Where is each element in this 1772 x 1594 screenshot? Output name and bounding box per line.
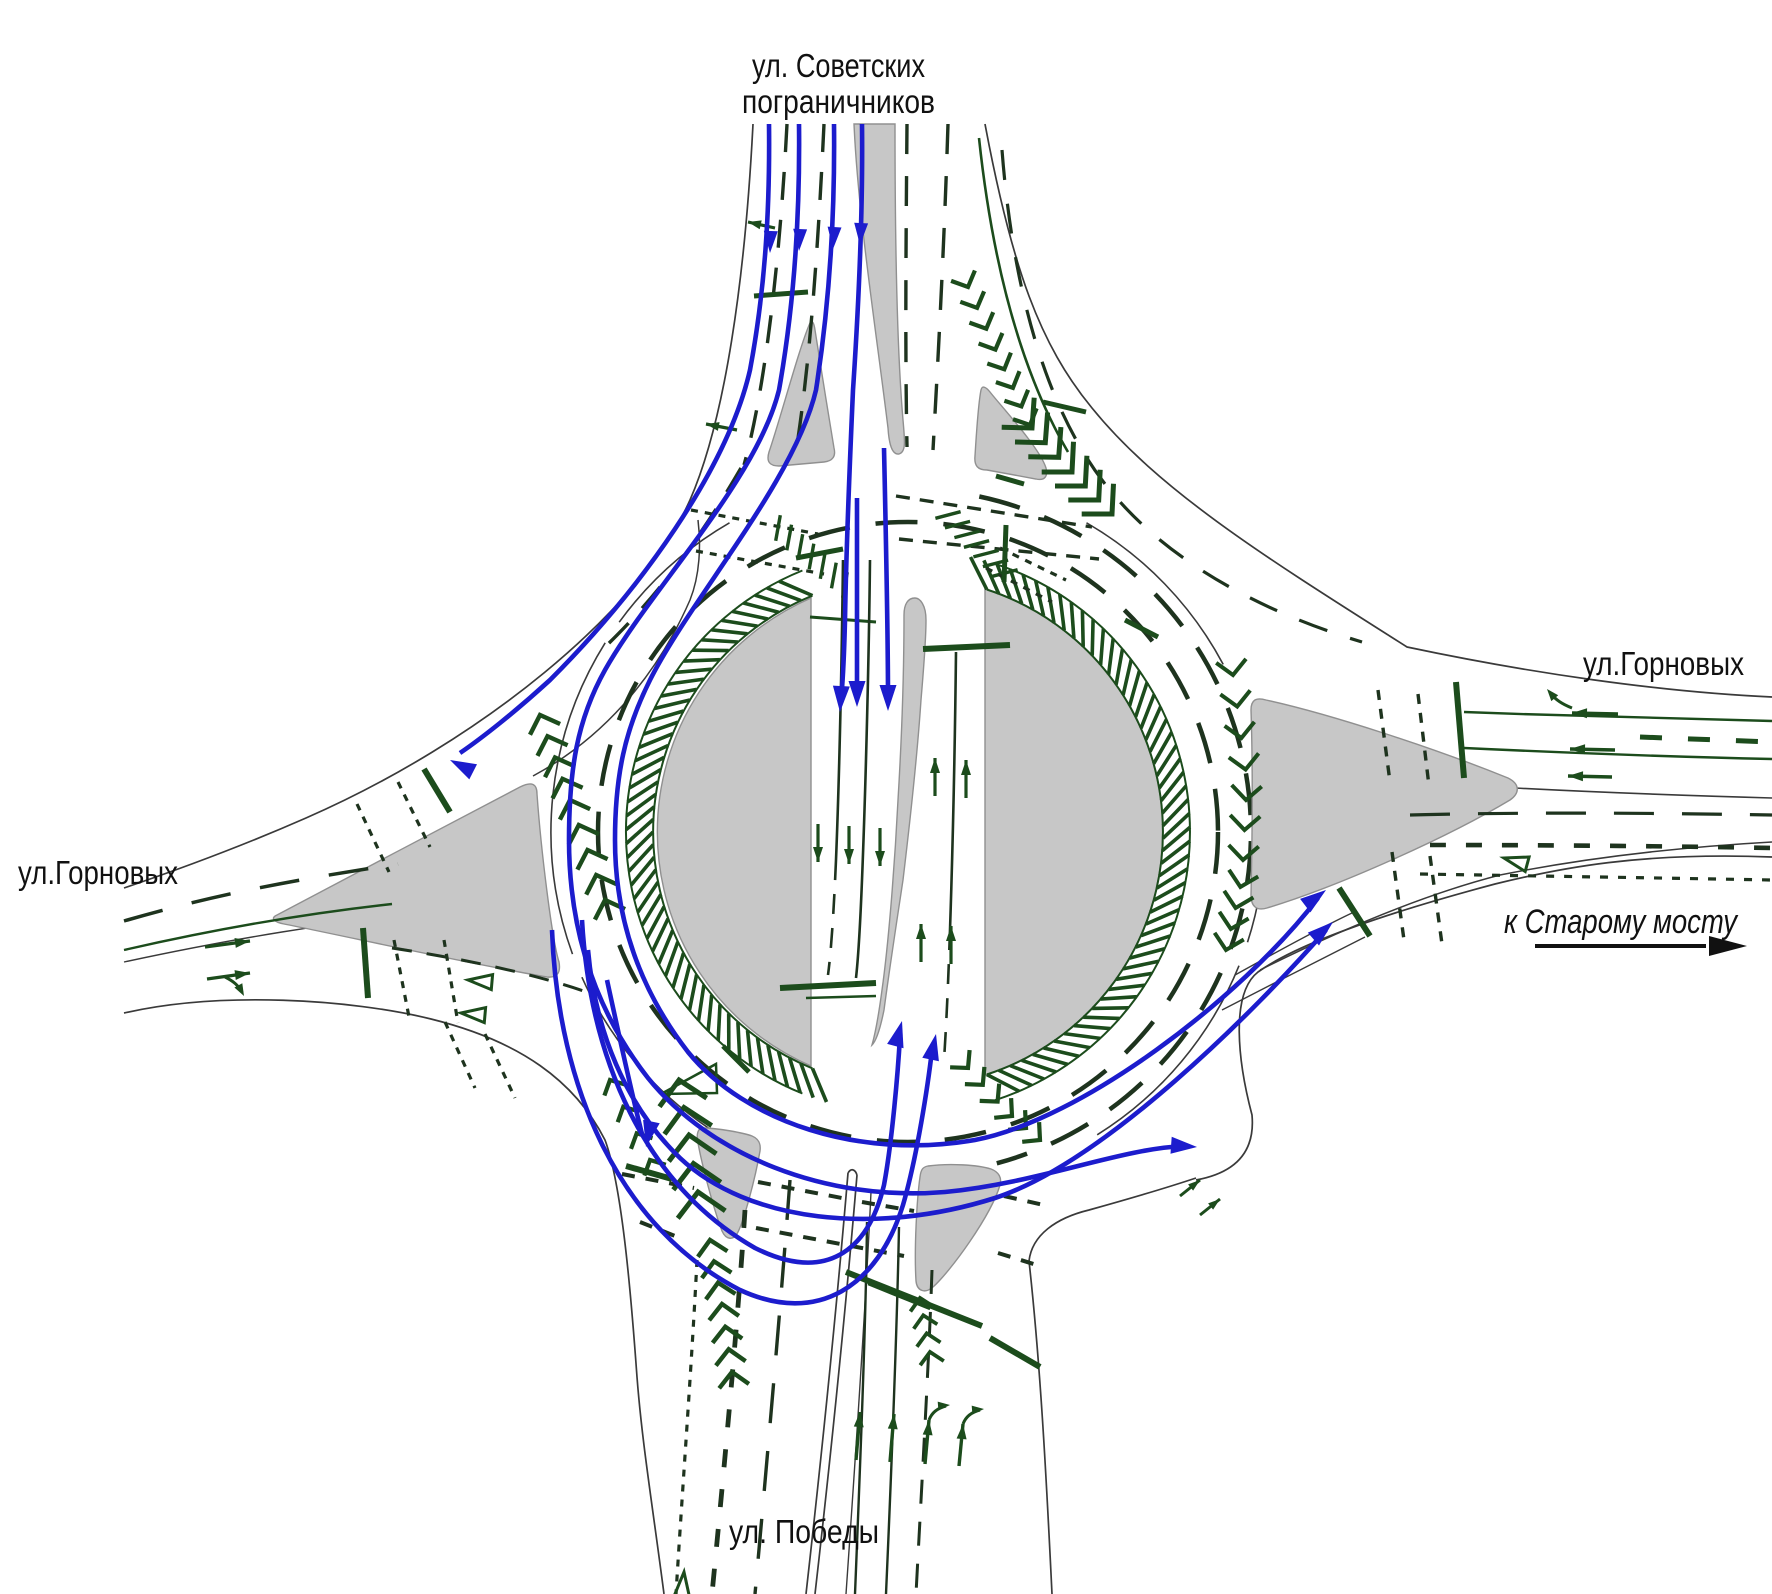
svg-text:к Старому мосту: к Старому мосту — [1504, 903, 1739, 941]
svg-text:ул.Горновых: ул.Горновых — [18, 854, 178, 891]
svg-text:пограничников: пограничников — [742, 83, 935, 120]
svg-text:ул.Горновых: ул.Горновых — [1583, 645, 1744, 682]
svg-text:ул. Советских: ул. Советских — [752, 47, 925, 84]
svg-text:ул. Победы: ул. Победы — [729, 1513, 879, 1550]
